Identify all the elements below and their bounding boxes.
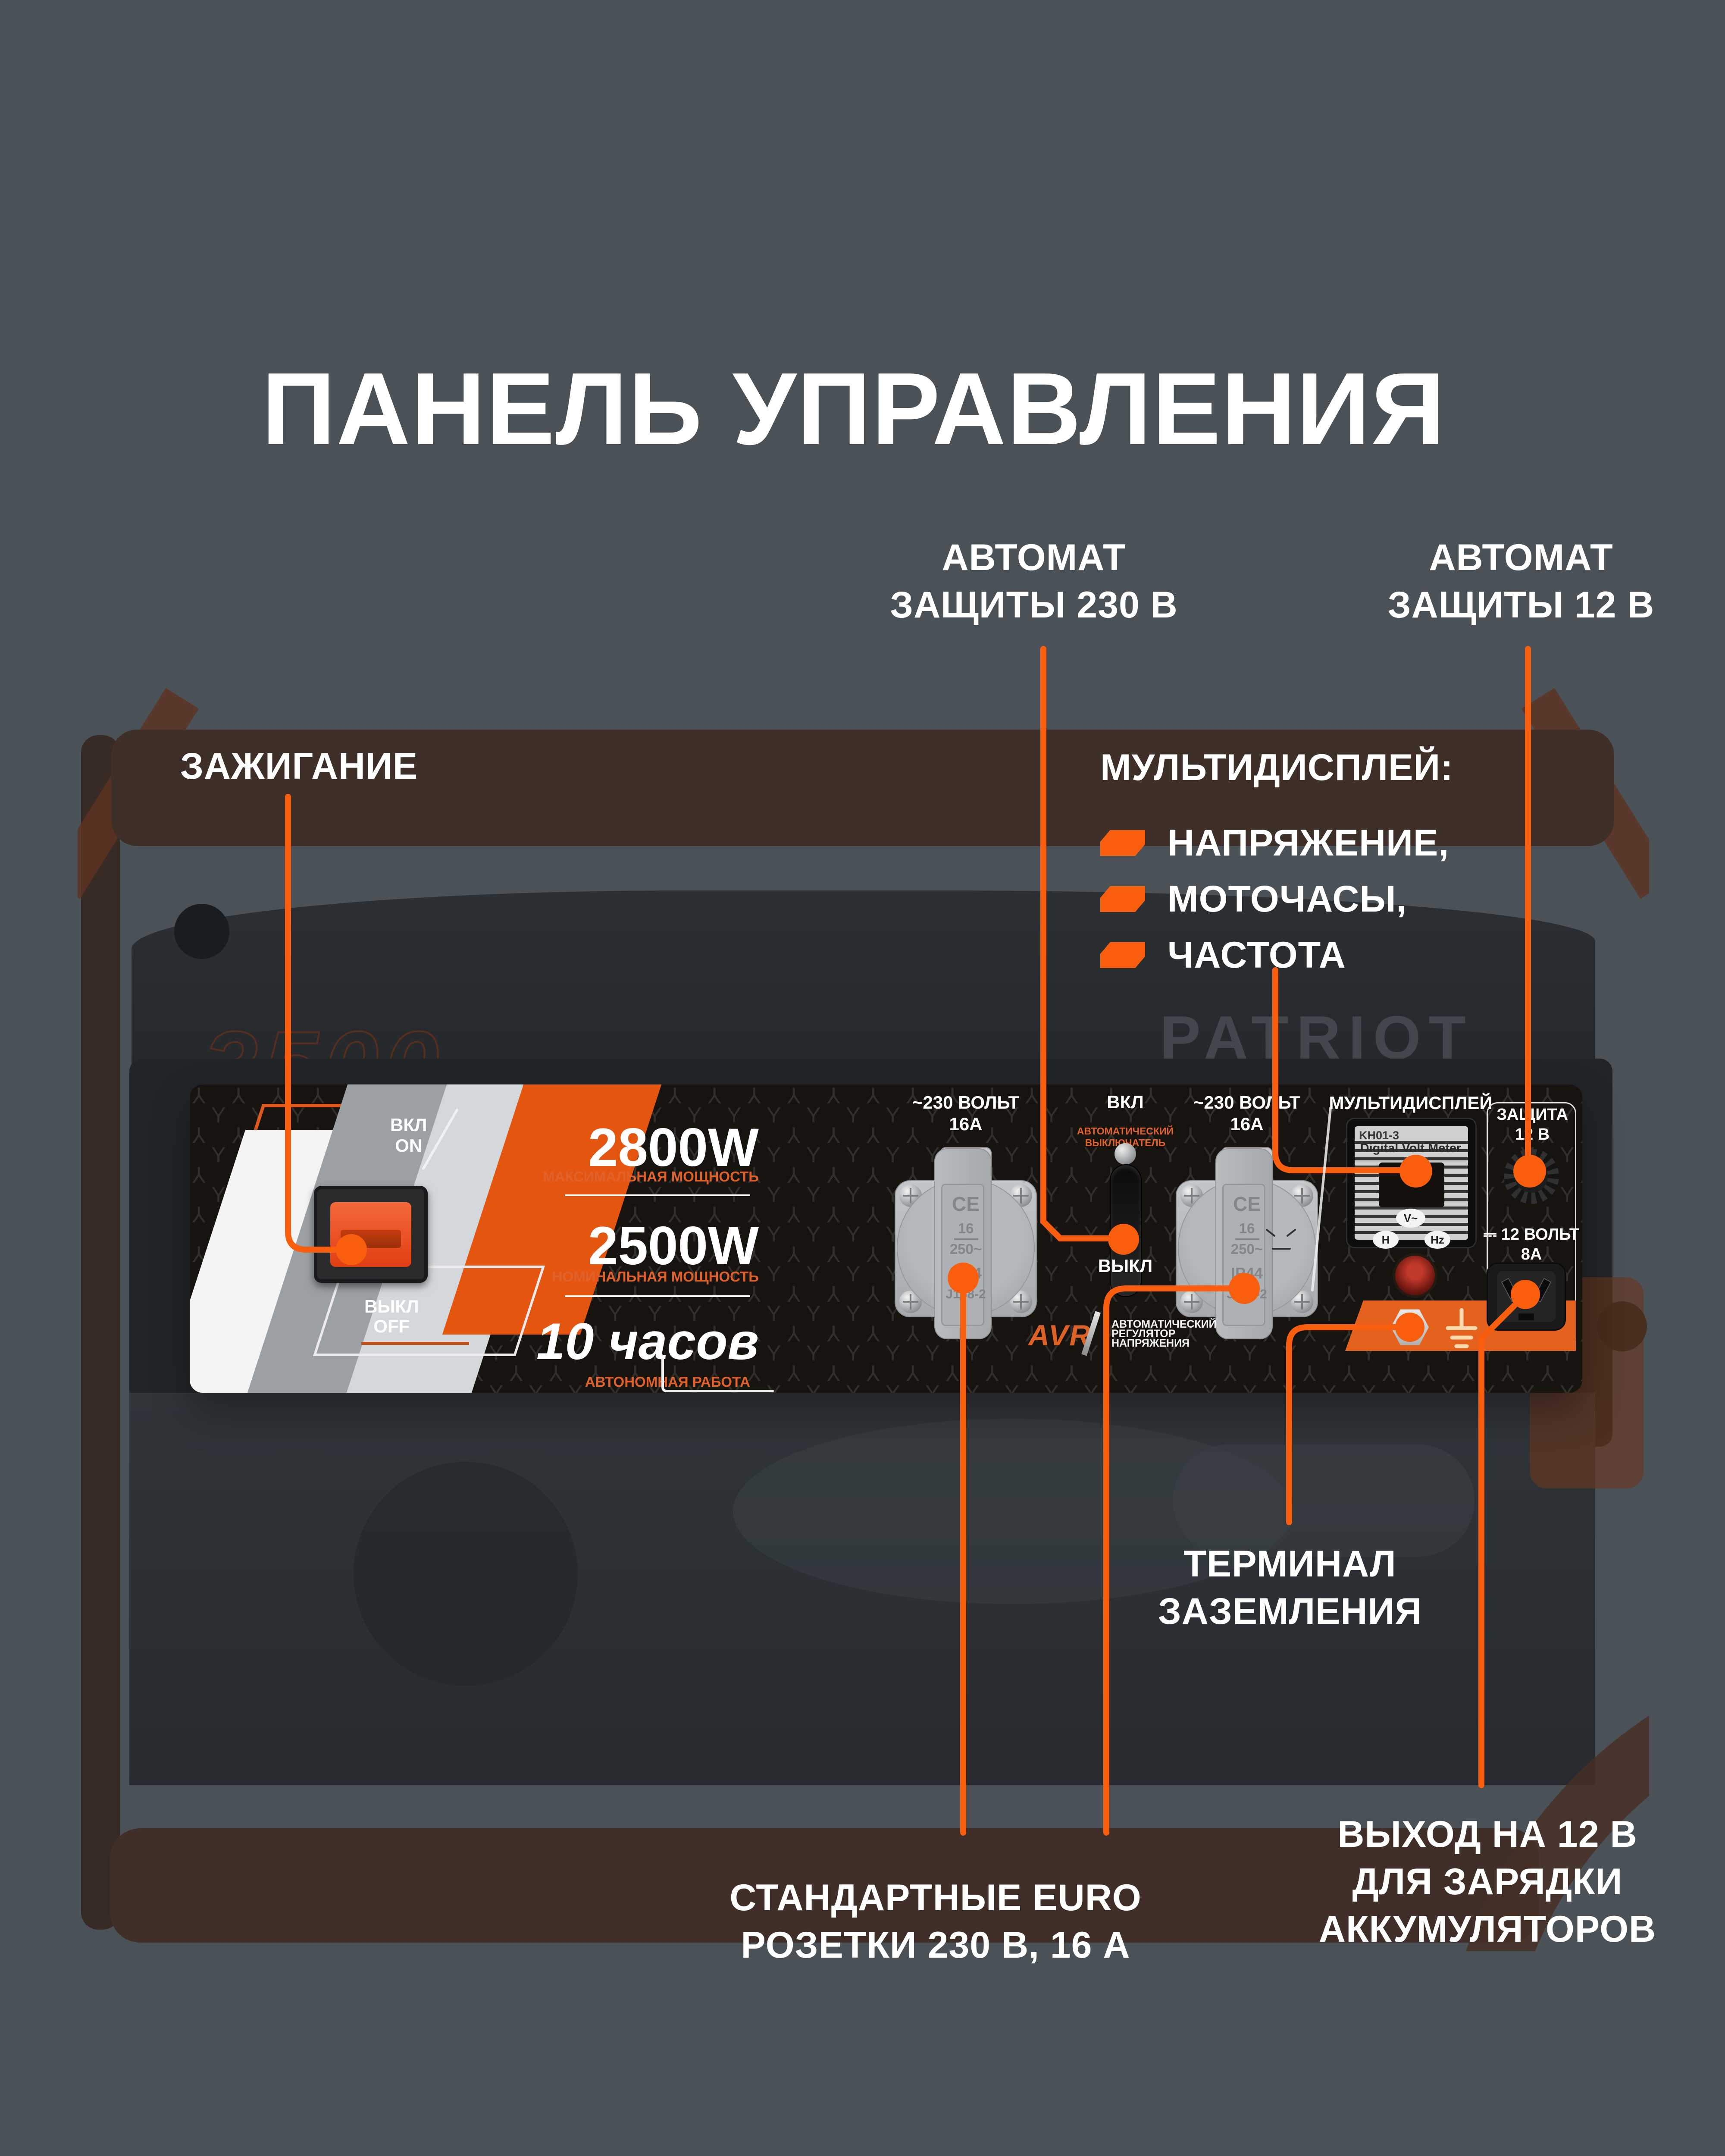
page-title: ПАНЕЛЬ УПРАВЛЕНИЯ [262, 350, 1446, 468]
multidisplay-item: НАПРЯЖЕНИЕ, [1168, 819, 1449, 867]
output12-dot [1511, 1280, 1540, 1309]
multidisplay-title: МУЛЬТИДИСПЛЕЙ: [1100, 744, 1453, 791]
multidisplay-item: ЧАСТОТА [1168, 931, 1346, 979]
multidisplay-item: МОТОЧАСЫ, [1168, 875, 1407, 923]
callout-breaker12: АВТОМАТЗАЩИТЫ 12 В [1388, 534, 1655, 629]
ignition-line [288, 797, 343, 1250]
deco-slash [423, 1110, 457, 1169]
infographic-page: 3500 PATRIOT ПАНЕЛЬ УПРАВЛЕНИЯ ⅄ Y [0, 0, 1725, 2156]
callout-ground: ТЕРМИНАЛЗАЗЕМЛЕНИЯ [1158, 1540, 1422, 1635]
ground-symbol-icon [1448, 1310, 1475, 1346]
callout-ignition: ЗАЖИГАНИЕ [180, 743, 418, 790]
display-cycle-arrows [1267, 1230, 1295, 1249]
breaker230-dot [1108, 1224, 1139, 1255]
callout-output12: ВЫХОД НА 12 ВДЛЯ ЗАРЯДКИАККУМУЛЯТОРОВ [1319, 1811, 1656, 1953]
ignition-dot [336, 1234, 367, 1265]
bullet-icon [1100, 942, 1145, 968]
deco-corner [663, 1359, 773, 1391]
multidisplay-line [1275, 970, 1401, 1170]
output12-line [1481, 1306, 1514, 1785]
callout-sockets: СТАНДАРТНЫЕ EUROРОЗЕТКИ 230 В, 16 А [729, 1874, 1141, 1969]
socket1-dot [948, 1263, 979, 1294]
deco-line [1312, 1108, 1331, 1290]
bullet-icon [1100, 830, 1145, 856]
multidisplay-dot [1399, 1155, 1432, 1188]
ground-line [1289, 1327, 1395, 1522]
ground-dot [1395, 1313, 1424, 1342]
callout-breaker230: АВТОМАТЗАЩИТЫ 230 В [890, 534, 1178, 629]
breaker12-dot [1513, 1155, 1546, 1188]
callout-multidisplay: МУЛЬТИДИСПЛЕЙ: НАПРЯЖЕНИЕ, МОТОЧАСЫ, ЧАС… [1100, 744, 1453, 983]
socket2-dot [1229, 1273, 1260, 1304]
bullet-icon [1100, 886, 1145, 912]
